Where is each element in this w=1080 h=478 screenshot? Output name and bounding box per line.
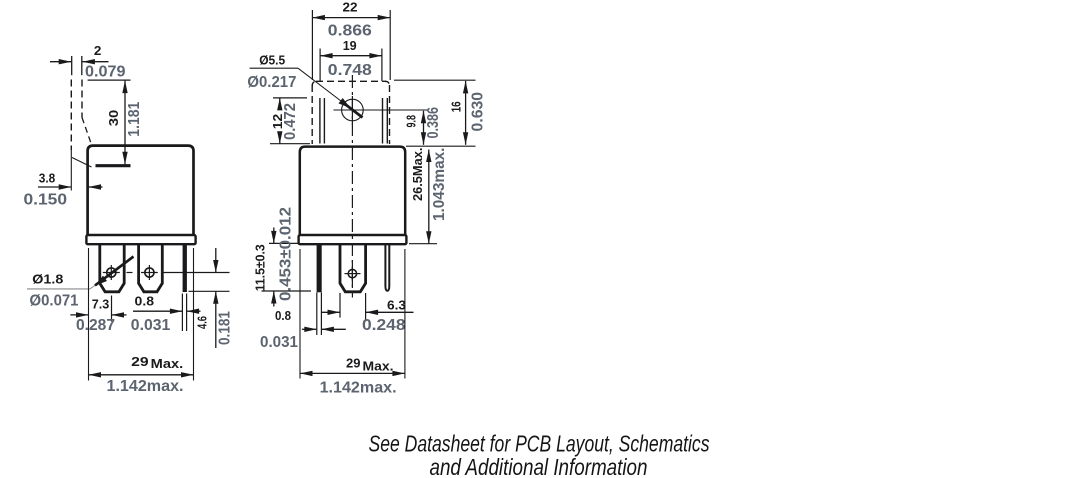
svg-text:Ø5.5: Ø5.5 [259,52,285,67]
svg-text:0.287: 0.287 [76,317,115,334]
svg-text:0.748: 0.748 [328,62,372,79]
svg-text:19: 19 [343,38,357,53]
svg-text:16: 16 [449,101,464,112]
svg-text:0.248: 0.248 [362,317,406,334]
svg-text:See Datasheet for PCB Layout,: See Datasheet for PCB Layout, Schematics [369,431,710,457]
svg-text:30: 30 [106,110,121,127]
svg-text:6.3: 6.3 [387,298,406,313]
svg-text:0.150: 0.150 [24,191,68,208]
svg-text:Ø1.8: Ø1.8 [32,271,63,286]
svg-text:Max.: Max. [363,359,394,374]
svg-text:11.5±0.3: 11.5±0.3 [253,244,268,291]
svg-text:Max.: Max. [151,356,184,371]
svg-text:0.031: 0.031 [260,334,298,351]
svg-text:9.8: 9.8 [403,115,418,128]
svg-text:0.866: 0.866 [328,22,372,39]
svg-text:1.181: 1.181 [126,101,143,136]
svg-text:29: 29 [346,356,361,371]
svg-text:0.8: 0.8 [135,294,155,309]
svg-text:0.8: 0.8 [275,308,291,323]
svg-text:0.453±0.012: 0.453±0.012 [277,207,294,301]
svg-text:0.630: 0.630 [470,92,487,132]
svg-text:26.5Max.: 26.5Max. [410,148,425,202]
svg-text:1.142max.: 1.142max. [107,378,184,395]
svg-text:4.6: 4.6 [194,316,209,329]
svg-text:0.031: 0.031 [131,317,171,334]
svg-text:1.142max.: 1.142max. [320,379,397,396]
svg-text:3.8: 3.8 [39,171,56,186]
svg-text:0.079: 0.079 [85,63,126,80]
svg-text:0.181: 0.181 [216,311,233,345]
svg-text:22: 22 [343,0,358,15]
svg-text:1.043max.: 1.043max. [431,148,448,222]
svg-text:2: 2 [94,43,102,58]
svg-text:and Additional Information: and Additional Information [430,454,648,478]
svg-text:7.3: 7.3 [92,296,110,311]
svg-text:0.472: 0.472 [282,103,299,140]
svg-text:0.386: 0.386 [425,107,442,139]
svg-text:29: 29 [131,354,149,369]
svg-text:Ø0.217: Ø0.217 [247,74,296,91]
svg-text:Ø0.071: Ø0.071 [30,292,79,309]
